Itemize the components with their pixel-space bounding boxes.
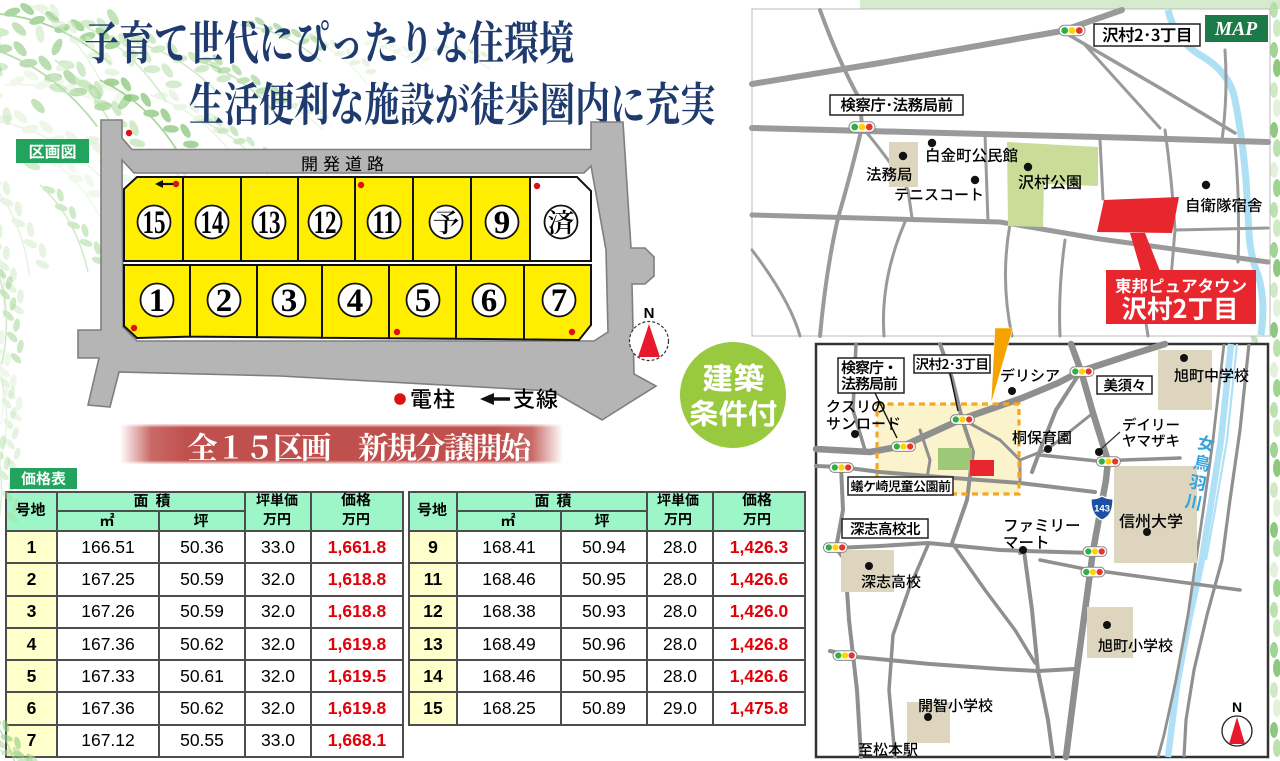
svg-text:3: 3 <box>281 283 298 319</box>
svg-text:11: 11 <box>373 205 396 241</box>
svg-text:143: 143 <box>1094 504 1110 515</box>
svg-text:14: 14 <box>201 205 224 241</box>
svg-text:N: N <box>644 305 655 322</box>
svg-text:4: 4 <box>347 283 364 319</box>
svg-text:1: 1 <box>149 283 166 319</box>
svg-text:MAP: MAP <box>1214 19 1258 40</box>
svg-text:2: 2 <box>216 283 233 319</box>
svg-text:12: 12 <box>314 205 337 241</box>
svg-text:6: 6 <box>481 283 498 319</box>
svg-text:N: N <box>1232 699 1242 715</box>
svg-text:7: 7 <box>551 283 568 319</box>
svg-text:13: 13 <box>258 205 281 241</box>
svg-text:15: 15 <box>143 205 166 241</box>
svg-text:9: 9 <box>494 205 511 241</box>
svg-text:5: 5 <box>415 283 432 319</box>
